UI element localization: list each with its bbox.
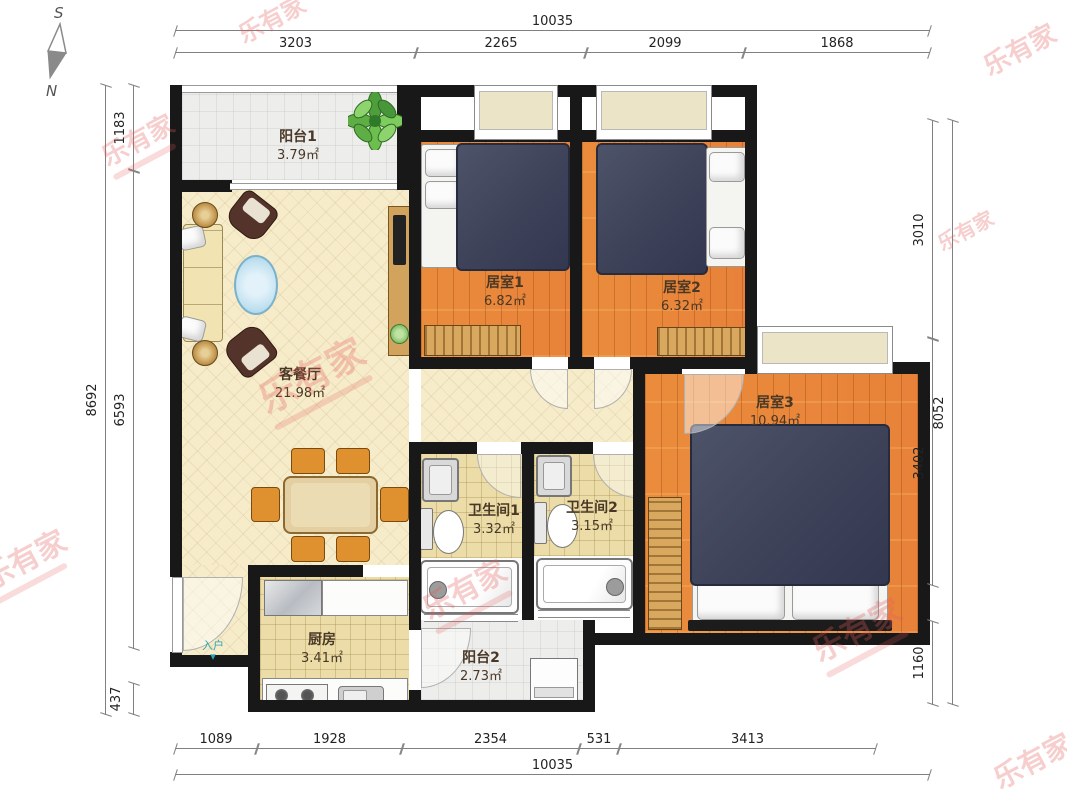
room-label-bedroom3: 居室3 10.94㎡ xyxy=(730,394,820,430)
balcony1-sliding-door xyxy=(230,183,397,190)
bed3-wardrobe-icon xyxy=(648,497,682,630)
dim-right-total: 8052 xyxy=(952,120,953,705)
dim-top-seg2: 2265 xyxy=(416,52,586,53)
bedroom2-bay-window xyxy=(596,85,712,140)
room-label-living: 客餐厅 21.98㎡ xyxy=(255,366,345,402)
side-table-icon xyxy=(192,202,218,228)
dining-chair-icon xyxy=(291,536,325,562)
entrance-arrow-icon: ▾ xyxy=(210,650,216,663)
tv-icon xyxy=(393,215,406,265)
wall xyxy=(170,180,232,192)
dim-left-seg1: 1183 xyxy=(133,85,134,171)
wall xyxy=(409,357,532,369)
dim-right-seg3: 1160 xyxy=(932,621,933,705)
kitchen-counter-icon xyxy=(322,580,408,616)
room-label-bedroom2: 居室2 6.32㎡ xyxy=(637,279,727,315)
dim-right-seg1: 3010 xyxy=(932,120,933,339)
wall xyxy=(409,442,421,630)
room-label-bath1: 卫生间1 3.32㎡ xyxy=(450,502,538,538)
dim-bottom-seg3: 2354 xyxy=(402,748,579,749)
small-plant-icon xyxy=(390,324,409,344)
watermark: 乐有家 xyxy=(932,203,999,257)
bed1-wardrobe-icon xyxy=(424,325,521,356)
bath1-window xyxy=(424,614,518,622)
compass-north-label: N xyxy=(46,82,57,100)
compass-needle-icon xyxy=(40,22,74,80)
dim-bottom-seg2: 1928 xyxy=(257,748,402,749)
bed3-icon xyxy=(690,424,890,586)
dim-top-total: 10035 xyxy=(175,30,930,31)
watermark: 乐有家 xyxy=(0,517,77,605)
wall xyxy=(745,85,757,374)
fridge-icon xyxy=(264,580,322,616)
bath1-bathtub-icon xyxy=(420,560,519,614)
wall xyxy=(521,442,593,454)
room-label-balcony1: 阳台1 3.79㎡ xyxy=(253,128,343,164)
wall xyxy=(248,565,363,577)
bath1-toilet-icon xyxy=(420,508,433,550)
dining-table-icon xyxy=(283,476,378,534)
entrance-label: 入户 ▾ xyxy=(193,640,233,662)
bath2-sink-icon xyxy=(536,455,572,497)
dim-top-seg3: 2099 xyxy=(586,52,744,53)
bed1-icon xyxy=(456,143,570,271)
dim-left-seg3: 437 xyxy=(133,683,134,715)
dim-bottom-seg4: 531 xyxy=(579,748,619,749)
watermark: 乐有家 xyxy=(986,723,1067,798)
wall xyxy=(568,357,594,369)
dim-bottom-seg5: 3413 xyxy=(619,748,876,749)
dim-bottom-total: 10035 xyxy=(175,774,930,775)
bath1-sink-icon xyxy=(422,458,459,502)
watermark: 乐有家 xyxy=(976,14,1062,83)
room-label-bath2: 卫生间2 3.15㎡ xyxy=(548,499,636,535)
wall xyxy=(170,85,182,577)
wall xyxy=(409,95,421,360)
entrance-door-leaf xyxy=(172,577,183,653)
bedroom3-bay-window xyxy=(757,326,893,374)
floor-plan-canvas: S N xyxy=(0,0,1067,800)
bed3-footboard-icon xyxy=(688,620,892,631)
wall xyxy=(637,442,645,454)
wall xyxy=(570,95,582,369)
dining-chair-icon xyxy=(336,448,370,474)
wall xyxy=(248,700,595,712)
room-label-balcony2: 阳台2 2.73㎡ xyxy=(436,649,526,685)
dining-chair-icon xyxy=(251,487,280,522)
wall xyxy=(595,633,930,645)
bath2-window xyxy=(538,610,630,618)
dim-left-total: 8692 xyxy=(105,85,106,715)
wall xyxy=(583,620,595,712)
plant-icon xyxy=(348,92,402,150)
bed2-pillow-icon xyxy=(709,152,745,182)
wall xyxy=(248,565,260,712)
dining-chair-icon xyxy=(336,536,370,562)
dim-right-seg2: 3402 xyxy=(932,339,933,586)
dim-left-seg2: 6593 xyxy=(133,171,134,649)
dining-chair-icon xyxy=(291,448,325,474)
dim-top-seg4: 1868 xyxy=(744,52,930,53)
bath2-bathtub-icon xyxy=(536,558,633,610)
dining-chair-icon xyxy=(380,487,409,522)
bedroom1-bay-window xyxy=(474,85,558,140)
compass-south-label: S xyxy=(54,4,64,22)
washing-machine-icon xyxy=(530,658,578,703)
coffee-table-icon xyxy=(234,255,278,315)
wall xyxy=(918,362,930,645)
bed2-icon xyxy=(596,143,708,275)
room-label-kitchen: 厨房 3.41㎡ xyxy=(277,631,367,667)
dim-top-seg1: 3203 xyxy=(175,52,416,53)
side-table-icon xyxy=(192,340,218,366)
wall xyxy=(645,362,682,374)
bed2-pillow-icon xyxy=(709,227,745,259)
dim-bottom-seg1: 1089 xyxy=(175,748,257,749)
room-label-bedroom1: 居室1 6.82㎡ xyxy=(460,274,550,310)
bed2-wardrobe-icon xyxy=(657,327,747,356)
